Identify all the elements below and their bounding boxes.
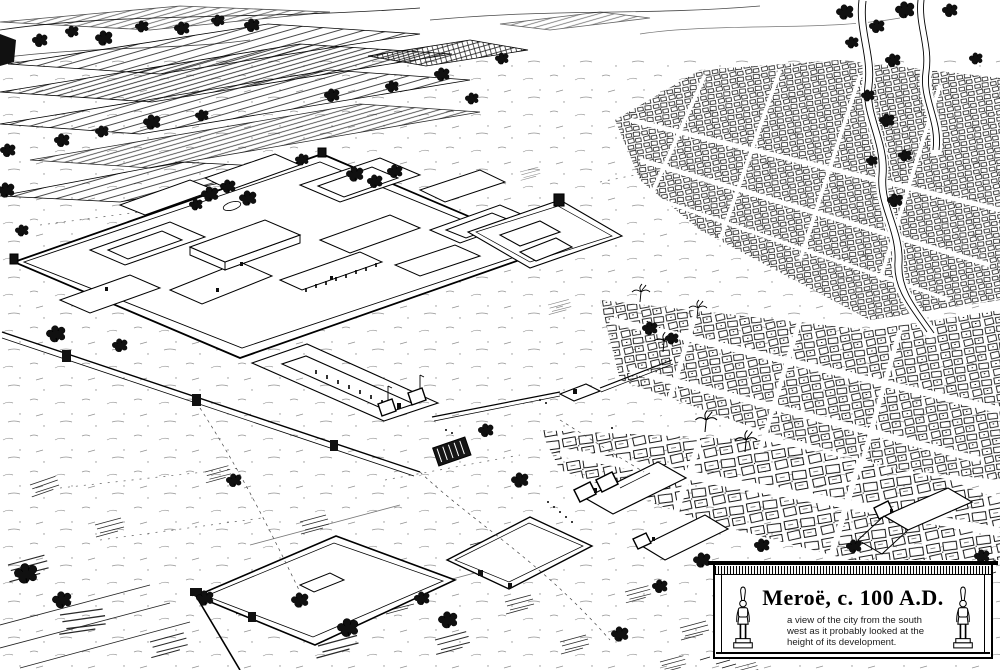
- caption-cartouche: Meroë, c. 100 A.D. a view of the city fr…: [713, 561, 993, 659]
- base-line: [716, 652, 990, 654]
- caption-line: height of its development.: [787, 638, 977, 649]
- meroe-reconstruction-illustration: Meroë, c. 100 A.D. a view of the city fr…: [0, 0, 1000, 670]
- caption-line: west as it probably looked at the: [787, 627, 977, 638]
- caption-title: Meroë, c. 100 A.D.: [713, 585, 993, 611]
- caption-description: a view of the city from the south west a…: [787, 616, 977, 648]
